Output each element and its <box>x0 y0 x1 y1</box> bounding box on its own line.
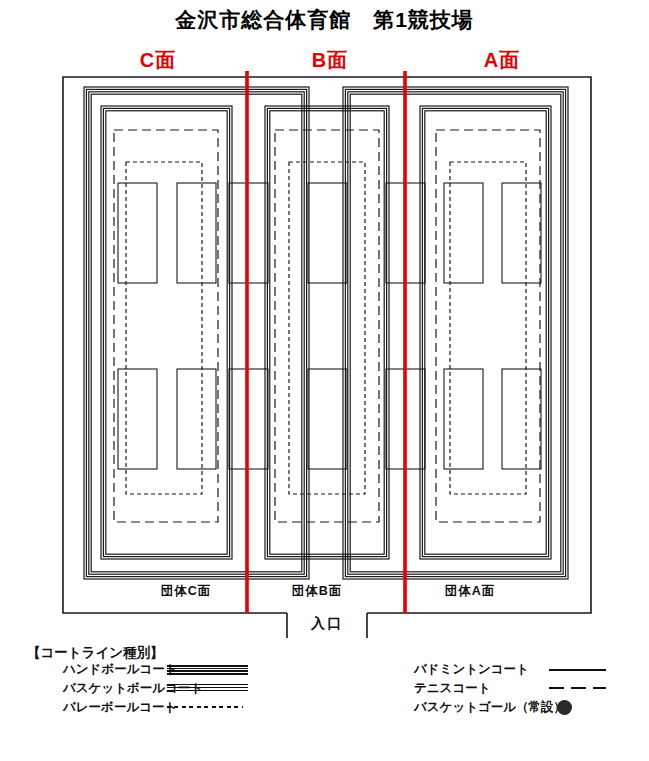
handball-court-right <box>343 87 568 579</box>
volleyball-court-b <box>289 162 365 494</box>
volleyball-court-a <box>450 162 526 494</box>
group-face-label-c: 団体C面 <box>161 583 212 600</box>
tennis-court-b <box>275 130 379 522</box>
group-face-label-a: 団体A面 <box>445 583 496 600</box>
entrance-label: 入口 <box>311 615 343 633</box>
badminton-court <box>118 369 157 469</box>
basketball-court-center <box>265 106 389 559</box>
group-face-label-b: 団体B面 <box>292 583 343 600</box>
badminton-court <box>177 183 216 283</box>
tennis-court-a <box>436 130 540 522</box>
badminton-court <box>177 369 216 469</box>
gym-court-diagram-page: 金沢市総合体育館 第1競技場 C面 B面 A面 <box>0 0 649 761</box>
volleyball-court-c <box>126 162 202 494</box>
badminton-court <box>308 183 347 283</box>
arena-diagram <box>0 0 649 761</box>
badminton-court <box>444 369 483 469</box>
badminton-court <box>308 369 347 469</box>
badminton-court <box>502 183 541 283</box>
basketball-court-right <box>420 106 551 559</box>
badminton-court <box>118 183 157 283</box>
basketball-court-left <box>101 106 232 559</box>
badminton-court <box>502 369 541 469</box>
